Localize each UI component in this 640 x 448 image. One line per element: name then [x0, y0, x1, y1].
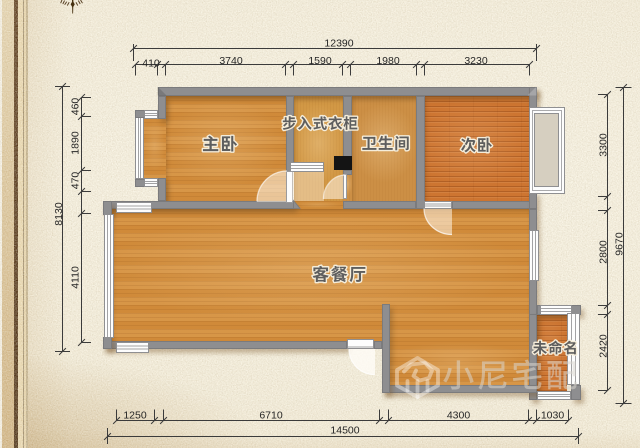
svg-text:1590: 1590 — [308, 55, 332, 67]
svg-text:1980: 1980 — [376, 55, 400, 67]
svg-text:470: 470 — [70, 172, 82, 190]
svg-text:3230: 3230 — [464, 55, 488, 67]
svg-text:6710: 6710 — [259, 410, 283, 422]
svg-text:4110: 4110 — [70, 266, 82, 289]
svg-text:1890: 1890 — [70, 131, 82, 155]
svg-text:12390: 12390 — [324, 38, 353, 50]
svg-text:9670: 9670 — [614, 232, 626, 256]
svg-text:3300: 3300 — [598, 133, 610, 157]
svg-text:1250: 1250 — [123, 410, 147, 422]
svg-text:2420: 2420 — [598, 334, 610, 358]
svg-text:14500: 14500 — [330, 425, 359, 437]
svg-text:410: 410 — [142, 58, 160, 70]
svg-text:2800: 2800 — [598, 240, 610, 264]
svg-text:460: 460 — [70, 98, 82, 116]
svg-text:3740: 3740 — [219, 55, 243, 67]
svg-text:8130: 8130 — [53, 202, 65, 226]
svg-text:4300: 4300 — [447, 410, 471, 422]
svg-text:1030: 1030 — [541, 410, 565, 422]
